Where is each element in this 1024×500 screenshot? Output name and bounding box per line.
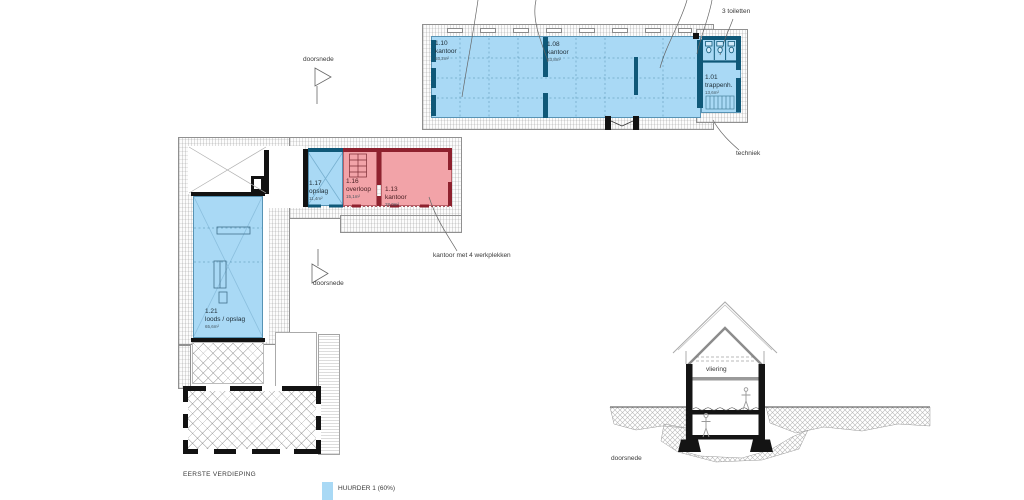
room-id: 1.17 (309, 180, 328, 188)
section-caption: doorsnede (611, 455, 642, 462)
toilets-annotation: 3 toiletten (722, 8, 750, 15)
window-tick (645, 28, 661, 33)
room-label-1-01: 1.01 trappenh. 13,6m² (705, 74, 732, 96)
attic-floor (693, 377, 759, 381)
room-area: 28,0m² (385, 202, 407, 208)
wall (431, 95, 436, 116)
wall (697, 40, 703, 108)
footing-left (678, 440, 701, 453)
room-id: 1.08 (547, 41, 569, 49)
room-label-1-08: 1.08 kantoor 83,8m² (547, 41, 569, 63)
room-name: kantoor (385, 194, 407, 202)
wall (377, 151, 381, 185)
floor-title: EERSTE VERDIEPING (183, 471, 256, 478)
legend-label: HUURDER 1 (60%) (338, 485, 395, 492)
room-name: opslag (309, 188, 328, 196)
barn-wall-gap (280, 449, 294, 454)
room-area: 15,1m² (346, 194, 371, 200)
section-wall-right (759, 364, 766, 440)
window-tick (447, 28, 463, 33)
stair-deck (318, 334, 340, 455)
window-tick (579, 28, 595, 33)
room-label-1-10: 1.10 kantoor 53,2m² (435, 40, 457, 62)
room-area: 13,6m² (705, 90, 732, 96)
room-label-1-21: 1.21 loods / opslag 65,6m² (205, 308, 245, 330)
room-name: kantoor (435, 48, 457, 56)
window-tick (612, 28, 628, 33)
room-id: 1.21 (205, 308, 245, 316)
wall (448, 182, 452, 206)
room-label-1-13: 1.13 kantoor 28,0m² (385, 186, 407, 208)
window-tick (480, 28, 496, 33)
barn-floor (188, 391, 316, 449)
room-id: 1.13 (385, 186, 407, 194)
window-tick (546, 28, 562, 33)
section-wall-left (686, 364, 693, 440)
room-area: 53,2m² (435, 56, 457, 62)
room-area: 83,8m² (547, 57, 569, 63)
barn-wall-gap (183, 428, 188, 440)
wall (736, 40, 741, 70)
attic-label: vliering (706, 366, 727, 373)
barn-wall-gap (316, 404, 321, 416)
wall (543, 93, 548, 118)
barn-wall-gap (262, 386, 282, 391)
room-id: 1.10 (435, 40, 457, 48)
barn-wall-gap (183, 402, 188, 414)
footing-right (750, 440, 773, 453)
barn-outline (183, 386, 321, 454)
techniek-annotation: techniek (736, 150, 760, 157)
terrace-deck (192, 342, 264, 384)
lower-roof-band-strip (178, 345, 191, 389)
room-id: 1.01 (705, 74, 732, 82)
wall (736, 78, 741, 112)
wall (191, 192, 265, 196)
mid-floor (693, 410, 759, 415)
workspaces-annotation: kantoor met 4 werkplekken (433, 252, 511, 259)
room-area: 11,4m² (309, 196, 328, 202)
room-area: 65,6m² (205, 324, 245, 330)
window-tick (513, 28, 529, 33)
wall (303, 149, 308, 207)
room-name: trappenh. (705, 82, 732, 90)
wall (448, 151, 452, 170)
lower-roof-band-south (340, 215, 462, 233)
wall (634, 57, 638, 95)
section-marker-middle-label: doorsnede (313, 280, 344, 287)
floorplan-drawing: 1.10 kantoor 53,2m² 1.08 kantoor 83,8m² … (0, 0, 1024, 500)
wall (191, 338, 265, 342)
wall (308, 148, 343, 152)
margin-strip (263, 194, 269, 342)
room-label-1-16: 1.16 overloop 15,1m² (346, 178, 371, 200)
barn-wall-gap (316, 430, 321, 440)
wall (343, 148, 452, 152)
entrance-jamb (633, 116, 639, 130)
ground-floor (686, 435, 765, 440)
legend-swatch (322, 482, 333, 500)
window-tick (678, 28, 692, 33)
barn-wall-gap (236, 449, 252, 454)
entrance-jamb (605, 116, 611, 130)
roof (673, 302, 777, 366)
room-name: loods / opslag (205, 316, 245, 324)
room-name: overloop (346, 186, 371, 194)
corridor-area (269, 146, 303, 208)
wall-notch (251, 176, 264, 192)
room-name: kantoor (547, 49, 569, 57)
wall (431, 68, 436, 88)
barn-wall-gap (206, 386, 230, 391)
cross-section (610, 302, 930, 462)
wall (377, 196, 381, 206)
room-label-1-17: 1.17 opslag 11,4m² (309, 180, 328, 202)
section-marker-top-label: doorsnede (303, 56, 334, 63)
room-id: 1.16 (346, 178, 371, 186)
deck-outline (275, 332, 317, 388)
wall (264, 150, 269, 194)
person-figure (702, 388, 751, 437)
wall-corner (693, 33, 699, 39)
barn-wall-gap (198, 449, 214, 454)
